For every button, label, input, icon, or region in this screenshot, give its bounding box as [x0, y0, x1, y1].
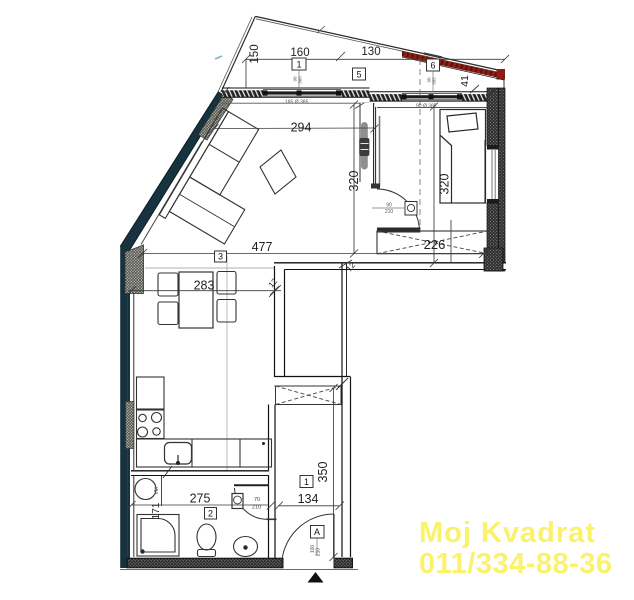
svg-text:477: 477	[252, 240, 273, 254]
svg-text:320: 320	[438, 174, 452, 195]
svg-text:320: 320	[347, 171, 361, 192]
svg-text:385: 385	[432, 77, 437, 85]
svg-text:385: 385	[298, 76, 303, 84]
svg-text:6: 6	[430, 61, 435, 71]
svg-text:3: 3	[218, 252, 223, 262]
svg-text:185 Ø 385: 185 Ø 385	[285, 100, 309, 106]
svg-text:5: 5	[356, 70, 361, 80]
svg-text:VM: VM	[154, 487, 160, 495]
svg-text:210: 210	[385, 209, 394, 215]
svg-text:283: 283	[194, 279, 215, 293]
svg-text:150: 150	[249, 44, 261, 63]
svg-text:210: 210	[316, 548, 322, 557]
svg-text:Moj Kvadrat: Moj Kvadrat	[419, 517, 596, 549]
svg-text:160: 160	[290, 47, 309, 59]
svg-text:275: 275	[190, 492, 211, 506]
svg-text:011/334-88-36: 011/334-88-36	[419, 548, 613, 580]
svg-text:130: 130	[361, 46, 380, 58]
svg-text:226: 226	[424, 237, 446, 252]
svg-text:90: 90	[386, 203, 392, 209]
svg-text:171: 171	[151, 502, 162, 519]
svg-text:2: 2	[208, 509, 213, 519]
svg-text:A: A	[314, 527, 320, 537]
svg-text:41: 41	[459, 75, 471, 87]
svg-text:134: 134	[298, 492, 319, 506]
svg-text:1: 1	[304, 477, 309, 487]
svg-text:350: 350	[316, 462, 330, 483]
svg-text:1: 1	[296, 60, 301, 70]
svg-text:294: 294	[291, 121, 312, 135]
svg-text:70: 70	[254, 497, 260, 503]
